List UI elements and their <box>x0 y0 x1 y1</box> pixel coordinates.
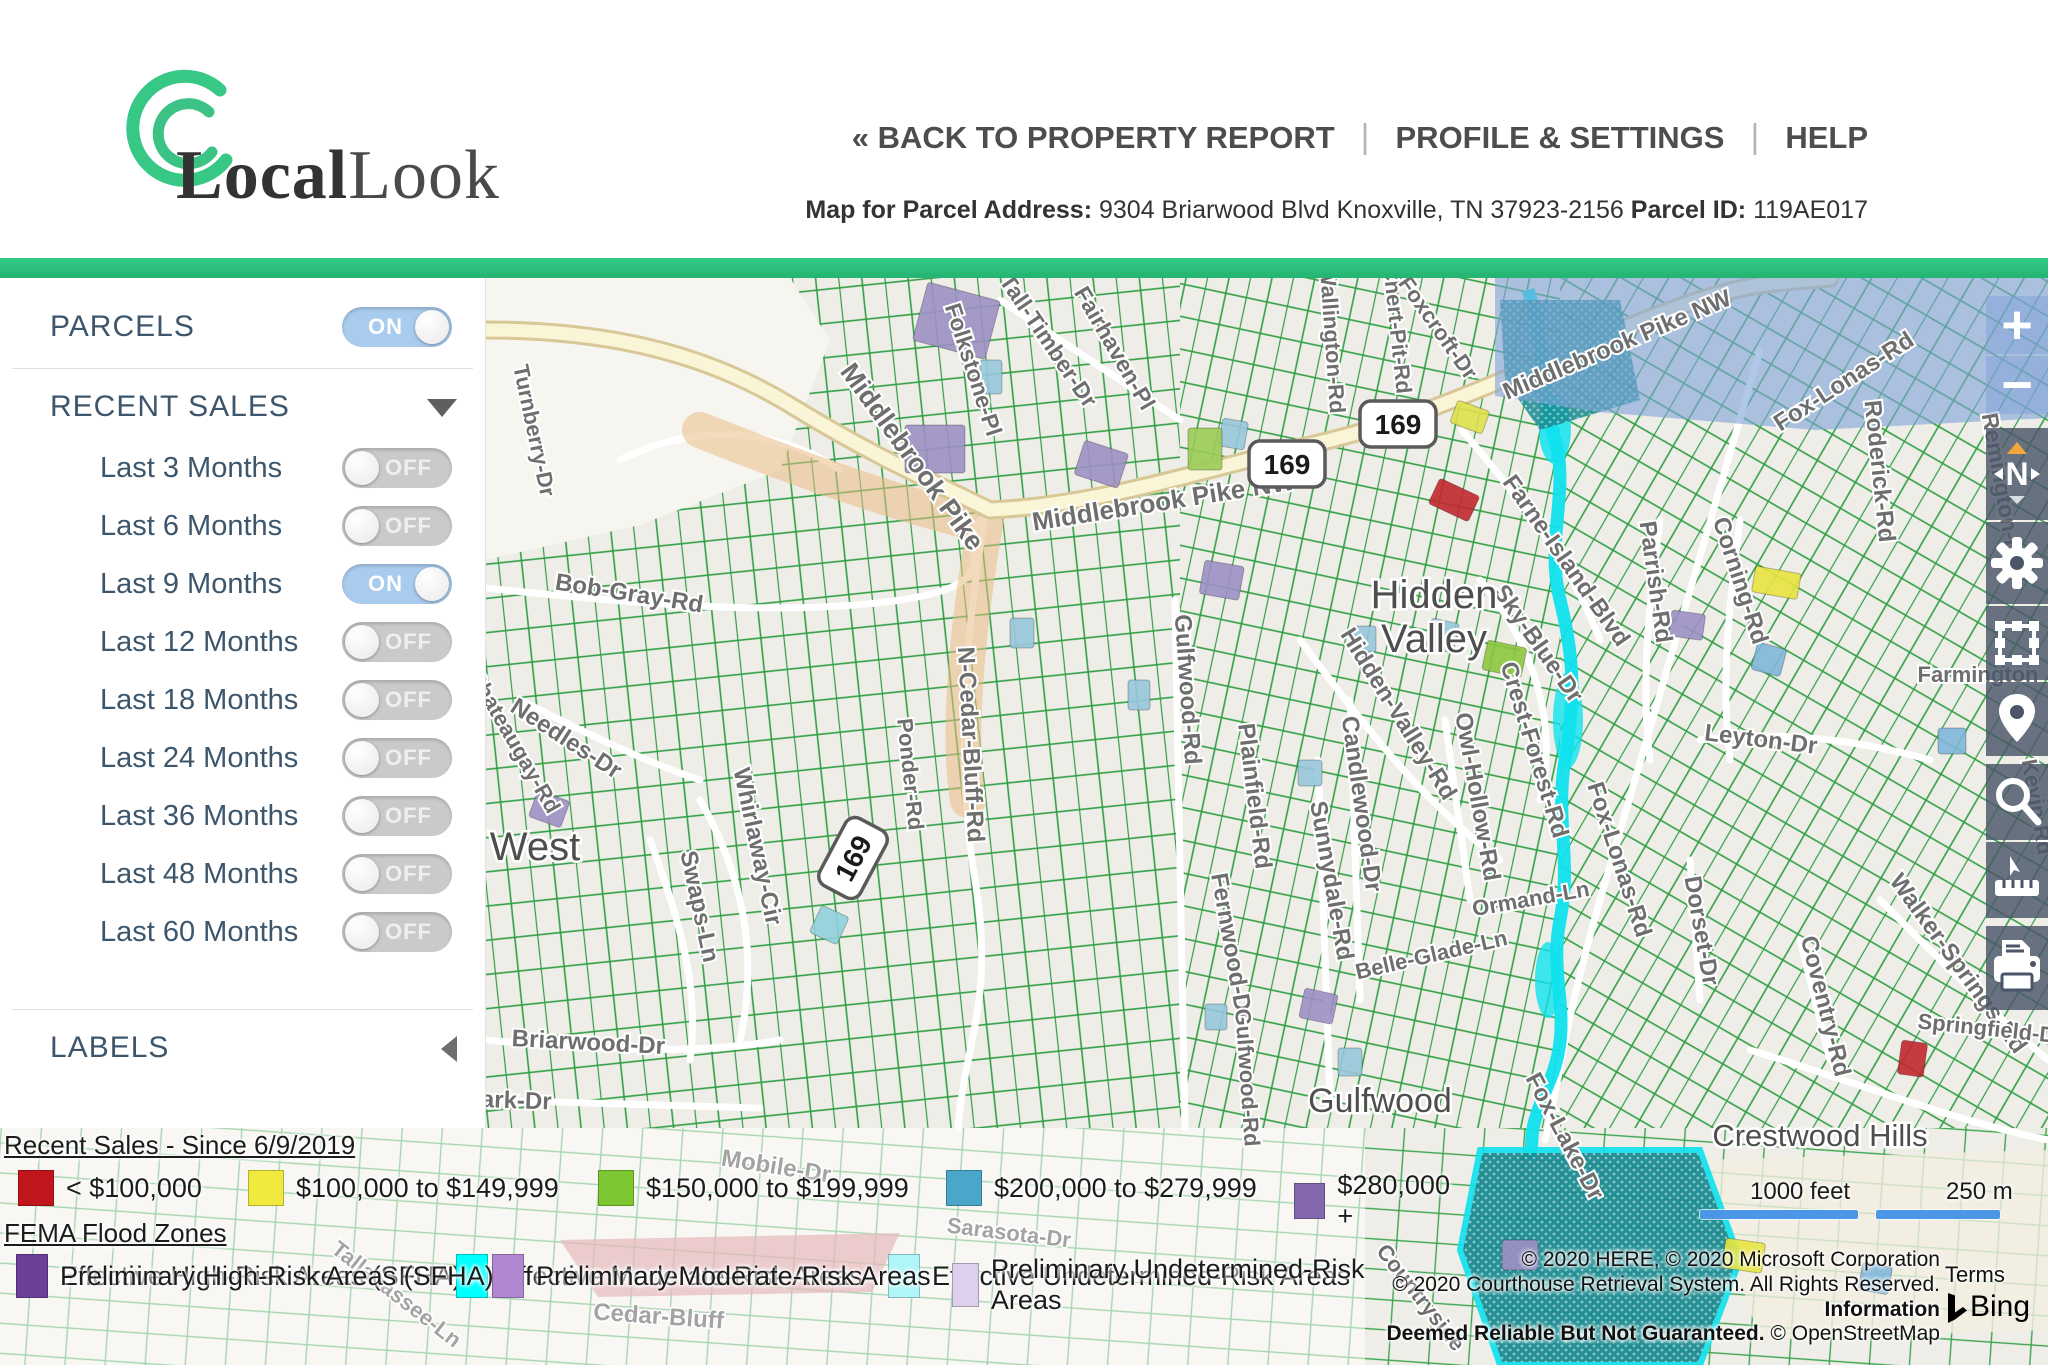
recent-sales-option-label: Last 12 Months <box>100 626 298 659</box>
legend-item: $100,000 to $149,999 <box>248 1170 559 1206</box>
recent-sales-toggle[interactable]: OFF <box>342 796 452 836</box>
toggle-knob <box>415 310 449 344</box>
recent-sales-option-row: Last 48 Months OFF <box>0 845 485 903</box>
divider <box>12 368 473 369</box>
header: LocalLook « BACK TO PROPERTY REPORT | PR… <box>0 0 2048 258</box>
legend-label: Preliminary Moderate-Risk Areas <box>536 1261 931 1292</box>
recent-sales-toggle[interactable]: OFF <box>342 680 452 720</box>
address-value: 9304 Briarwood Blvd Knoxville, TN 37923-… <box>1092 196 1631 224</box>
locallook-map-page: LocalLook « BACK TO PROPERTY REPORT | PR… <box>0 0 2048 1365</box>
parcel-id-value: 119AE017 <box>1746 196 1868 224</box>
nav-separator: | <box>1361 118 1370 157</box>
gear-icon <box>1986 522 2048 604</box>
scale-bar-feet <box>1700 1210 1858 1219</box>
toggle-knob <box>345 625 379 659</box>
toggle-knob <box>345 741 379 775</box>
measure-button[interactable] <box>1986 842 2048 918</box>
recent-sales-option-label: Last 18 Months <box>100 684 298 717</box>
legend-item: $150,000 to $199,999 <box>598 1170 909 1206</box>
toggle-knob <box>345 509 379 543</box>
sale-parcel <box>1338 1048 1362 1076</box>
sale-parcel <box>1199 560 1244 600</box>
location-pin-icon <box>1986 682 2048 756</box>
recent-sales-option-label: Last 48 Months <box>100 858 298 891</box>
recent-sales-option-row: Last 24 Months OFF <box>0 729 485 787</box>
back-to-property-report-link[interactable]: « BACK TO PROPERTY REPORT <box>852 120 1335 156</box>
legend-swatch <box>952 1263 979 1307</box>
recent-sales-option-row: Last 9 Months ON <box>0 555 485 613</box>
recent-sales-option-row: Last 12 Months OFF <box>0 613 485 671</box>
chevron-down-icon[interactable] <box>427 399 457 417</box>
toggle-knob <box>345 857 379 891</box>
place-label: West <box>490 825 580 869</box>
print-button[interactable] <box>1986 926 2048 1010</box>
svg-text:169: 169 <box>1375 409 1422 440</box>
toggle-state-text: OFF <box>385 513 432 539</box>
legend-swatch <box>16 1254 48 1298</box>
recent-sales-legend-row: < $100,000 $100,000 to $149,999 $150,000… <box>0 1170 1365 1216</box>
toggle-state-text: OFF <box>385 687 432 713</box>
legend-swatch <box>946 1170 982 1206</box>
legend-item: < $100,000 <box>18 1170 202 1206</box>
recent-sales-label: RECENT SALES <box>50 390 290 424</box>
parcels-row: PARCELS ON <box>0 292 485 362</box>
sale-parcel <box>1010 618 1034 648</box>
terms-bing-block: Terms Bing <box>1945 1262 2040 1324</box>
toggle-knob <box>415 567 449 601</box>
attribution-line2: © 2020 Courthouse Retrieval System. All … <box>1360 1273 1940 1323</box>
divider <box>12 1009 473 1010</box>
location-button[interactable] <box>1986 682 2048 756</box>
fema-legend-title: FEMA Flood Zones <box>4 1218 227 1249</box>
profile-settings-link[interactable]: PROFILE & SETTINGS <box>1396 120 1725 156</box>
parcel-id-label: Parcel ID: <box>1631 196 1746 224</box>
bing-logo[interactable]: Bing <box>1945 1290 2040 1324</box>
search-magnifier-icon <box>1986 764 2048 840</box>
attribution-line1: © 2020 HERE, © 2020 Microsoft Corporatio… <box>1360 1248 1940 1273</box>
scale-feet-label: 1000 feet <box>1750 1178 1850 1206</box>
recent-sales-option-row: Last 18 Months OFF <box>0 671 485 729</box>
toggle-state-text: ON <box>368 314 403 340</box>
highway-shield: 169 <box>1249 441 1325 487</box>
recent-sales-toggle[interactable]: OFF <box>342 506 452 546</box>
recent-sales-option-label: Last 24 Months <box>100 742 298 775</box>
toggle-state-text: OFF <box>385 455 432 481</box>
sale-parcel <box>1298 760 1322 786</box>
recent-sales-legend-title: Recent Sales - Since 6/9/2019 <box>4 1130 355 1161</box>
place-label: Hidden <box>1371 573 1498 617</box>
layers-sidebar: PARCELS ON RECENT SALES Last 3 Months OF… <box>0 278 486 1128</box>
measure-ruler-icon <box>1986 842 2048 918</box>
recent-sales-option-row: Last 6 Months OFF <box>0 497 485 555</box>
sale-parcel <box>1128 680 1150 710</box>
sale-parcel <box>1205 1004 1227 1030</box>
sale-parcel <box>1188 428 1222 470</box>
legend-item: $200,000 to $279,999 <box>946 1170 1257 1206</box>
logo-word-look: Look <box>348 137 500 214</box>
legend-swatch <box>18 1170 54 1206</box>
address-label: Map for Parcel Address: <box>805 196 1092 224</box>
legend-item: Preliminary Undetermined-Risk Areas <box>952 1254 1365 1316</box>
legend-swatch <box>248 1170 284 1206</box>
labels-section-label: LABELS <box>50 1031 169 1065</box>
header-nav: « BACK TO PROPERTY REPORT | PROFILE & SE… <box>852 118 1868 157</box>
recent-sales-toggle[interactable]: OFF <box>342 738 452 778</box>
recent-sales-list: Last 3 Months OFF Last 6 Months OFF <box>0 439 485 961</box>
recent-sales-toggle[interactable]: ON <box>342 564 452 604</box>
recent-sales-option-row: Last 3 Months OFF <box>0 439 485 497</box>
recent-sales-option-label: Last 36 Months <box>100 800 298 833</box>
nav-separator: | <box>1750 118 1759 157</box>
recent-sales-toggle[interactable]: OFF <box>342 622 452 662</box>
svg-text:169: 169 <box>1264 449 1311 480</box>
recent-sales-toggle[interactable]: OFF <box>342 448 452 488</box>
recent-sales-option-row: Last 36 Months OFF <box>0 787 485 845</box>
recent-sales-option-row: Last 60 Months OFF <box>0 903 485 961</box>
minus-icon: − <box>2001 358 2033 412</box>
accent-divider-bar <box>0 258 2048 278</box>
zoom-in-button[interactable]: + <box>1986 296 2048 354</box>
sale-parcel <box>1218 418 1248 450</box>
legend-label: Preliminary High-Risk Areas (SFHA) <box>60 1261 494 1292</box>
map-toolbar: + − N <box>1986 296 2048 1012</box>
settings-button[interactable] <box>1986 522 2048 604</box>
recent-sales-option-label: Last 3 Months <box>100 452 282 485</box>
toggle-state-text: OFF <box>385 745 432 771</box>
toggle-knob <box>345 799 379 833</box>
recent-sales-toggle[interactable]: OFF <box>342 912 452 952</box>
recent-sales-option-label: Last 9 Months <box>100 568 282 601</box>
place-label: Crestwood Hills <box>1712 1118 1927 1153</box>
recent-sales-option-label: Last 6 Months <box>100 510 282 543</box>
legend-label: $150,000 to $199,999 <box>646 1173 909 1204</box>
legend-swatch <box>1294 1183 1325 1219</box>
zoom-out-button[interactable]: − <box>1986 356 2048 414</box>
bing-wordmark: Bing <box>1970 1290 2030 1324</box>
toggle-state-text: OFF <box>385 803 432 829</box>
fema-legend-row-1: Effective High-Risk Areas (SFHA) Effecti… <box>0 1254 1365 1300</box>
sale-parcel <box>1299 988 1338 1024</box>
terms-link[interactable]: Terms <box>1945 1262 2040 1288</box>
toggle-knob <box>345 451 379 485</box>
legend-label: < $100,000 <box>66 1173 202 1204</box>
parcels-toggle[interactable]: ON <box>342 307 452 347</box>
legend-swatch <box>492 1254 524 1298</box>
compass-n-letter: N <box>2005 456 2028 492</box>
scale-bar-meters <box>1876 1210 2000 1219</box>
map-legend: Recent Sales - Since 6/9/2019 < $100,000… <box>0 1128 1365 1365</box>
sale-parcel <box>1897 1040 1927 1077</box>
legend-label: Preliminary Undetermined-Risk Areas <box>991 1254 1365 1316</box>
attribution-line3: Deemed Reliable But Not Guaranteed. © Op… <box>1360 1322 1940 1347</box>
legend-label: $100,000 to $149,999 <box>296 1173 559 1204</box>
legend-item: Preliminary High-Risk Areas (SFHA) <box>16 1254 494 1298</box>
locallook-logo[interactable]: LocalLook <box>108 48 668 208</box>
toggle-state-text: OFF <box>385 861 432 887</box>
toggle-knob <box>345 915 379 949</box>
logo-word-local: Local <box>176 137 348 214</box>
logo-wordmark: LocalLook <box>176 136 500 216</box>
plus-icon: + <box>2001 298 2033 352</box>
compass-icon: N <box>1986 428 2048 520</box>
scale-bars: 1000 feet 250 m <box>1688 1178 2018 1228</box>
legend-label: $280,000 + <box>1337 1170 1454 1232</box>
parcel-subtitle: Map for Parcel Address: 9304 Briarwood B… <box>805 196 1868 225</box>
toggle-state-text: OFF <box>385 919 432 945</box>
highway-shield: 169 <box>1360 401 1436 447</box>
legend-item: Preliminary Moderate-Risk Areas <box>492 1254 931 1298</box>
scale-meters-label: 250 m <box>1946 1178 2013 1206</box>
select-area-icon <box>1986 606 2048 680</box>
recent-sales-option-label: Last 60 Months <box>100 916 298 949</box>
toggle-knob <box>345 683 379 717</box>
legend-label: $200,000 to $279,999 <box>994 1173 1257 1204</box>
recent-sales-toggle[interactable]: OFF <box>342 854 452 894</box>
toggle-state-text: OFF <box>385 629 432 655</box>
labels-section-header[interactable]: LABELS <box>0 1016 485 1080</box>
printer-icon <box>1986 926 2048 1010</box>
parcels-label: PARCELS <box>50 310 195 344</box>
legend-item: $280,000 + <box>1294 1170 1455 1232</box>
place-label: Gulfwood <box>1308 1082 1452 1120</box>
compass-control[interactable]: N <box>1986 428 2048 520</box>
recent-sales-header[interactable]: RECENT SALES <box>0 375 485 439</box>
toggle-state-text: ON <box>368 571 403 597</box>
legend-swatch <box>598 1170 634 1206</box>
chevron-left-icon[interactable] <box>441 1036 457 1062</box>
help-link[interactable]: HELP <box>1785 120 1868 156</box>
place-label: Valley <box>1381 617 1487 661</box>
map-attribution: © 2020 HERE, © 2020 Microsoft Corporatio… <box>1360 1248 1940 1347</box>
bing-b-icon <box>1945 1291 1967 1323</box>
sale-parcel <box>1938 728 1966 754</box>
select-area-button[interactable] <box>1986 606 2048 680</box>
search-button[interactable] <box>1986 764 2048 840</box>
